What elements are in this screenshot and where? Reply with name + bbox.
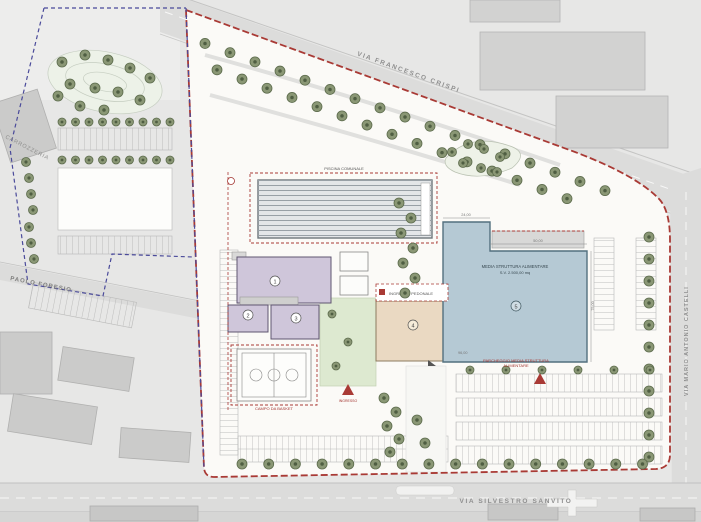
tree-icon bbox=[225, 48, 235, 58]
tree-icon bbox=[58, 118, 66, 126]
tree-icon bbox=[600, 186, 610, 196]
tree-icon bbox=[85, 156, 93, 164]
number-market: 5 bbox=[514, 304, 517, 310]
tree-icon bbox=[25, 223, 34, 232]
number-pavilion: 4 bbox=[411, 323, 414, 329]
tree-icon bbox=[317, 459, 327, 469]
tree-icon bbox=[166, 156, 174, 164]
tree-icon bbox=[477, 164, 486, 173]
street-label-sanvito: VIA SILVESTRO SANVITO bbox=[460, 498, 573, 505]
tree-icon bbox=[113, 87, 123, 97]
tree-icon bbox=[99, 156, 107, 164]
tree-icon bbox=[525, 158, 535, 168]
pool-label: PISCINA COMUNALE bbox=[324, 166, 364, 171]
traffic-island bbox=[396, 486, 454, 495]
tree-icon bbox=[464, 140, 473, 149]
tree-icon bbox=[135, 95, 145, 105]
tree-icon bbox=[99, 105, 109, 115]
tree-icon bbox=[575, 176, 585, 186]
tree-icon bbox=[584, 459, 594, 469]
tree-icon bbox=[25, 174, 34, 183]
tree-icon bbox=[153, 118, 161, 126]
tree-icon bbox=[610, 366, 618, 374]
tree-icon bbox=[344, 459, 354, 469]
tree-icon bbox=[103, 55, 113, 65]
tree-icon bbox=[287, 92, 297, 102]
entrance-label: INGRESSO bbox=[339, 399, 358, 403]
tree-icon bbox=[125, 63, 135, 73]
market-building bbox=[443, 222, 587, 362]
tree-icon bbox=[27, 239, 36, 248]
number-annex-right: 3 bbox=[294, 316, 297, 322]
tree-icon bbox=[262, 83, 272, 93]
tree-icon bbox=[375, 103, 385, 113]
tree-icon bbox=[437, 148, 447, 158]
tree-icon bbox=[477, 459, 487, 469]
tree-icon bbox=[112, 118, 120, 126]
tree-icon bbox=[126, 118, 134, 126]
tree-icon bbox=[250, 57, 260, 67]
market-label-1: MEDIA STRUTTURA ALIMENTARE bbox=[482, 264, 549, 269]
tree-icon bbox=[312, 102, 322, 112]
dim-2: 50,00 bbox=[533, 239, 543, 243]
tree-icon bbox=[264, 459, 274, 469]
tree-icon bbox=[550, 167, 560, 177]
tree-icon bbox=[531, 459, 541, 469]
tree-icon bbox=[325, 84, 335, 94]
number-hall: 1 bbox=[273, 279, 276, 285]
tree-icon bbox=[493, 168, 502, 177]
tree-icon bbox=[538, 366, 546, 374]
tree-icon bbox=[27, 190, 36, 199]
tree-icon bbox=[237, 459, 247, 469]
tree-icon bbox=[400, 288, 410, 298]
sports-hall-buildings bbox=[228, 252, 331, 339]
tree-icon bbox=[557, 459, 567, 469]
dim-3: 75,00 bbox=[591, 301, 595, 311]
street-label-castelli: VIA MARIO ANTONIO CASTELLI bbox=[684, 286, 690, 396]
tree-icon bbox=[379, 393, 389, 403]
tree-icon bbox=[408, 243, 418, 253]
tree-icon bbox=[644, 430, 654, 440]
note-label: INGRESSO PEDONALE bbox=[389, 291, 433, 296]
dim-1: 24,00 bbox=[461, 213, 471, 217]
tree-icon bbox=[22, 158, 31, 167]
number-annex-left: 2 bbox=[246, 313, 249, 319]
tree-icon bbox=[300, 75, 310, 85]
tree-icon bbox=[644, 386, 654, 396]
site-plan-drawing: INGRESSO PEDONALE INGRESSO 24,00 50,00 7… bbox=[0, 0, 701, 522]
tree-icon bbox=[638, 459, 648, 469]
tree-icon bbox=[644, 232, 654, 242]
tree-icon bbox=[459, 159, 468, 168]
tree-icon bbox=[574, 366, 582, 374]
tree-icon bbox=[290, 459, 300, 469]
dim-4: 96,00 bbox=[458, 351, 468, 355]
tree-icon bbox=[397, 459, 407, 469]
tree-icon bbox=[644, 276, 654, 286]
tree-icon bbox=[212, 65, 222, 75]
tree-icon bbox=[451, 459, 461, 469]
tree-icon bbox=[145, 73, 155, 83]
pavilion-building bbox=[376, 301, 450, 366]
tree-icon bbox=[396, 228, 406, 238]
tree-icon bbox=[425, 121, 435, 131]
tree-icon bbox=[644, 342, 654, 352]
tree-icon bbox=[65, 79, 75, 89]
tree-icon bbox=[57, 57, 67, 67]
tree-icon bbox=[85, 118, 93, 126]
tree-icon bbox=[644, 320, 654, 330]
tree-icon bbox=[400, 112, 410, 122]
market-label-2: S.V. 2.500,00 mq bbox=[500, 270, 531, 275]
tree-icon bbox=[332, 362, 340, 370]
tree-icon bbox=[166, 118, 174, 126]
tree-icon bbox=[398, 258, 408, 268]
tree-icon bbox=[75, 101, 85, 111]
tree-icon bbox=[394, 198, 404, 208]
tree-icon bbox=[350, 94, 360, 104]
tree-icon bbox=[72, 156, 80, 164]
site-plan: INGRESSO PEDONALE INGRESSO 24,00 50,00 7… bbox=[0, 0, 701, 522]
tree-icon bbox=[126, 156, 134, 164]
tree-icon bbox=[420, 438, 430, 448]
tree-icon bbox=[466, 366, 474, 374]
tree-icon bbox=[328, 310, 336, 318]
tree-icon bbox=[80, 50, 90, 60]
tree-icon bbox=[153, 156, 161, 164]
tree-icon bbox=[646, 366, 654, 374]
tree-icon bbox=[504, 459, 514, 469]
tree-icon bbox=[644, 408, 654, 418]
tree-icon bbox=[644, 254, 654, 264]
tree-icon bbox=[112, 156, 120, 164]
tree-icon bbox=[406, 213, 416, 223]
tree-icon bbox=[480, 145, 489, 154]
tree-icon bbox=[424, 459, 434, 469]
tree-icon bbox=[90, 83, 100, 93]
tree-icon bbox=[362, 120, 372, 130]
tree-icon bbox=[412, 415, 422, 425]
tree-icon bbox=[512, 175, 522, 185]
tree-icon bbox=[30, 255, 39, 264]
tree-icon bbox=[496, 153, 505, 162]
tree-icon bbox=[611, 459, 621, 469]
tree-icon bbox=[99, 118, 107, 126]
tree-icon bbox=[644, 298, 654, 308]
tree-icon bbox=[448, 148, 457, 157]
tree-icon bbox=[337, 111, 347, 121]
basket-label: CAMPO DA BASKET bbox=[255, 406, 294, 411]
tree-icon bbox=[371, 459, 381, 469]
tree-icon bbox=[410, 273, 420, 283]
tree-icon bbox=[237, 74, 247, 84]
tree-icon bbox=[391, 407, 401, 417]
tree-icon bbox=[387, 129, 397, 139]
tree-icon bbox=[562, 194, 572, 204]
tree-icon bbox=[139, 156, 147, 164]
tree-icon bbox=[72, 118, 80, 126]
tree-icon bbox=[537, 184, 547, 194]
tree-icon bbox=[200, 38, 210, 48]
tree-icon bbox=[139, 118, 147, 126]
tree-icon bbox=[29, 206, 38, 215]
tree-icon bbox=[53, 91, 63, 101]
tree-icon bbox=[412, 138, 422, 148]
tree-icon bbox=[382, 421, 392, 431]
tree-icon bbox=[450, 130, 460, 140]
tree-icon bbox=[344, 338, 352, 346]
parking-label-2: ALIMENTARE bbox=[503, 363, 529, 368]
tree-icon bbox=[275, 66, 285, 76]
tree-icon bbox=[385, 447, 395, 457]
tree-icon bbox=[394, 434, 404, 444]
tree-icon bbox=[58, 156, 66, 164]
basketball-court bbox=[237, 349, 311, 401]
